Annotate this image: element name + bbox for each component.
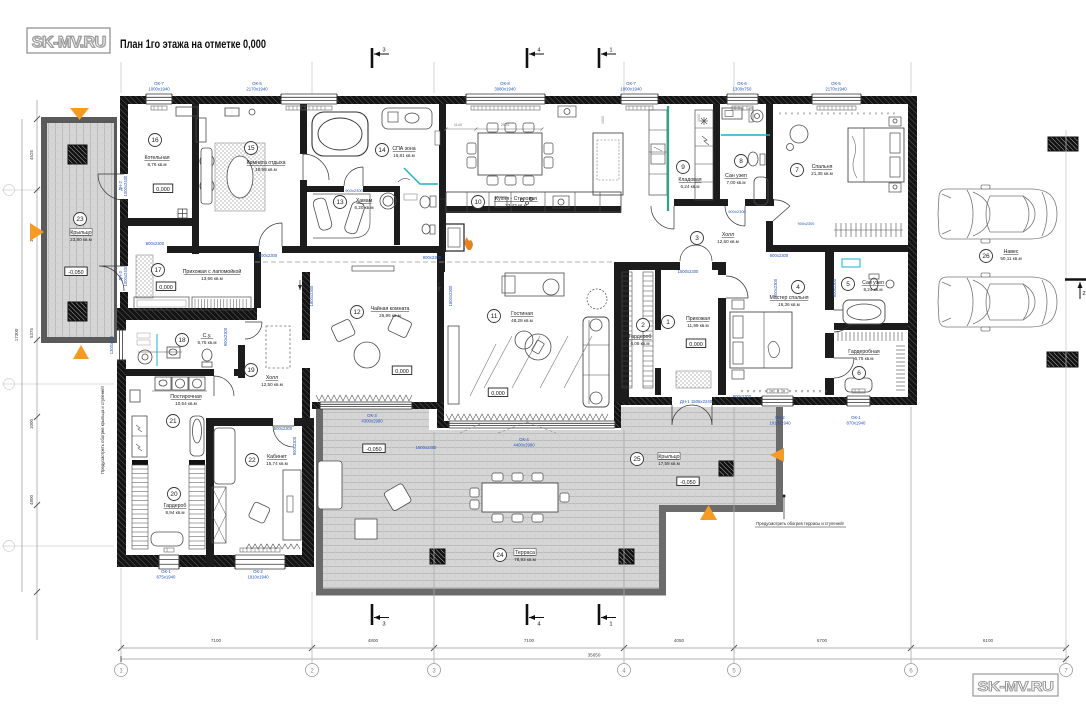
svg-text:ОК-5: ОК-5 [831, 81, 841, 86]
svg-text:13,66 кв.м: 13,66 кв.м [201, 276, 223, 281]
svg-text:0,000: 0,000 [491, 391, 505, 397]
svg-text:×: × [759, 389, 762, 395]
svg-text:800х2300: 800х2300 [773, 278, 778, 297]
svg-text:15: 15 [247, 145, 255, 152]
svg-text:СПА зона: СПА зона [392, 146, 415, 152]
svg-text:15,74 кв.м: 15,74 кв.м [266, 461, 288, 466]
svg-text:Сан узел: Сан узел [862, 280, 884, 286]
svg-text:900х2300: 900х2300 [733, 394, 752, 399]
svg-text:×: × [807, 389, 810, 395]
svg-text:ОК-5: ОК-5 [252, 81, 262, 86]
svg-text:×: × [833, 111, 836, 116]
svg-text:×: × [815, 111, 818, 116]
svg-text:Хамам: Хамам [356, 198, 373, 204]
svg-text:ОК-2: ОК-2 [775, 415, 785, 420]
svg-text:×: × [791, 111, 794, 116]
svg-text:×: × [825, 389, 828, 395]
svg-text:2: 2 [641, 322, 645, 329]
svg-text:ОК-3: ОК-3 [367, 413, 377, 418]
svg-text:Кладовая: Кладовая [678, 177, 701, 183]
svg-text:1: 1 [609, 48, 612, 54]
svg-text:4300х2990: 4300х2990 [361, 419, 383, 424]
svg-text:×: × [839, 111, 842, 116]
svg-text:6,75 кв.м: 6,75 кв.м [197, 340, 216, 345]
svg-text:×: × [797, 111, 800, 116]
svg-text:6,75 кв.м: 6,75 кв.м [854, 356, 873, 361]
svg-text:7100: 7100 [524, 638, 535, 643]
svg-text:Чайная комната: Чайная комната [371, 305, 410, 312]
svg-text:900х2300: 900х2300 [798, 222, 815, 226]
svg-text:1000: 1000 [29, 418, 34, 429]
svg-text:0,000: 0,000 [395, 369, 409, 375]
svg-text:11: 11 [491, 313, 498, 320]
svg-text:2: 2 [1082, 291, 1085, 297]
svg-text:1800х2300: 1800х2300 [309, 285, 314, 306]
svg-text:×: × [803, 111, 806, 116]
svg-text:Крыльцо: Крыльцо [70, 230, 91, 236]
svg-text:1800х2300: 1800х2300 [448, 285, 453, 306]
svg-text:12,60 кв.м: 12,60 кв.м [717, 239, 739, 244]
svg-text:×: × [809, 111, 812, 116]
svg-text:×: × [857, 111, 860, 116]
svg-text:22: 22 [248, 457, 256, 464]
svg-text:×: × [801, 389, 804, 395]
svg-text:-0,050: -0,050 [68, 270, 83, 276]
svg-text:17300: 17300 [14, 328, 19, 341]
svg-text:25: 25 [633, 456, 641, 463]
svg-text:Холл: Холл [722, 232, 734, 238]
svg-text:50,11 кв.м: 50,11 кв.м [1000, 256, 1021, 261]
svg-text:25,95 кв.м: 25,95 кв.м [379, 313, 401, 318]
svg-text:3: 3 [382, 48, 385, 54]
svg-text:SK-MV.RU: SK-MV.RU [978, 678, 1054, 694]
svg-text:7100: 7100 [211, 638, 222, 643]
svg-text:-0,050: -0,050 [366, 447, 381, 453]
svg-text:1000х1940: 1000х1940 [620, 87, 642, 92]
svg-text:6100: 6100 [983, 638, 994, 643]
svg-text:Навес: Навес [1004, 249, 1019, 255]
svg-text:1: 1 [609, 622, 612, 628]
svg-text:9: 9 [681, 164, 685, 171]
svg-text:18: 18 [178, 337, 186, 344]
svg-text:13: 13 [336, 199, 344, 206]
svg-text:4050: 4050 [674, 638, 685, 643]
svg-text:900х2300: 900х2300 [274, 426, 293, 431]
svg-text:Терраса: Терраса [515, 550, 535, 556]
svg-text:×: × [771, 389, 774, 395]
svg-text:Гардероб: Гардероб [629, 334, 652, 340]
svg-text:Гардеробная: Гардеробная [848, 349, 880, 355]
svg-text:23,80 кв.м: 23,80 кв.м [70, 237, 92, 242]
svg-text:11,99 кв.м: 11,99 кв.м [687, 323, 708, 328]
svg-text:1000х2400: 1000х2400 [123, 265, 128, 286]
svg-text:×: × [821, 111, 824, 116]
svg-text:1500х2300: 1500х2300 [416, 445, 437, 450]
svg-text:-0,050: -0,050 [680, 480, 695, 486]
svg-text:4800: 4800 [368, 638, 379, 643]
svg-text:8,76 кв.м: 8,76 кв.м [147, 162, 166, 167]
svg-text:78,93 кв.м: 78,93 кв.м [514, 557, 536, 562]
svg-text:23: 23 [76, 216, 84, 223]
svg-text:Сан узел: Сан узел [725, 173, 747, 179]
svg-text:×: × [851, 111, 854, 116]
svg-text:5: 5 [846, 281, 850, 288]
svg-text:19: 19 [247, 367, 255, 374]
svg-text:ОК-1: ОК-1 [161, 569, 171, 574]
svg-text:×: × [863, 111, 866, 116]
svg-text:6: 6 [857, 370, 861, 377]
svg-text:Крыльцо: Крыльцо [658, 454, 679, 460]
svg-text:8,24 кв.м: 8,24 кв.м [863, 287, 882, 292]
svg-text:14: 14 [378, 147, 386, 154]
svg-text:ОК-7: ОК-7 [154, 81, 164, 86]
svg-text:17: 17 [154, 267, 162, 274]
svg-text:1000: 1000 [601, 116, 605, 124]
svg-text:3: 3 [382, 622, 385, 628]
svg-text:1: 1 [666, 319, 670, 326]
svg-text:1910х1940: 1910х1940 [247, 575, 269, 580]
svg-text:1140: 1140 [454, 123, 462, 127]
svg-text:800х2300: 800х2300 [146, 241, 165, 246]
svg-text:3080х1940: 3080х1940 [494, 87, 516, 92]
svg-text:×: × [827, 111, 830, 116]
svg-text:ОК-4: ОК-4 [519, 437, 529, 442]
svg-text:5375: 5375 [29, 327, 34, 338]
svg-text:6,08 кв.м: 6,08 кв.м [630, 341, 649, 346]
svg-text:Кабинет: Кабинет [267, 454, 287, 460]
svg-text:21,35 кв.м: 21,35 кв.м [811, 171, 833, 176]
svg-text:8,94 кв.м: 8,94 кв.м [165, 510, 184, 515]
svg-text:1000х1940: 1000х1940 [148, 87, 170, 92]
svg-text:2500: 2500 [501, 123, 509, 127]
svg-text:7: 7 [795, 167, 799, 174]
svg-text:3: 3 [695, 235, 699, 242]
svg-text:16,81 кв.м: 16,81 кв.м [393, 153, 415, 158]
svg-text:Кухня - Столовая: Кухня - Столовая [495, 196, 537, 202]
svg-text:1000: 1000 [697, 114, 701, 122]
svg-text:4400х2990: 4400х2990 [513, 443, 535, 448]
svg-text:0,000: 0,000 [159, 285, 173, 291]
svg-text:1300х750: 1300х750 [109, 335, 114, 354]
svg-text:2170х1940: 2170х1940 [825, 87, 847, 92]
svg-text:×: × [875, 111, 878, 116]
svg-text:33,43 кв.м: 33,43 кв.м [505, 203, 527, 208]
svg-text:×: × [785, 111, 788, 116]
svg-text:12: 12 [353, 309, 361, 316]
svg-text:Гардероб: Гардероб [164, 503, 187, 509]
svg-text:Котельная: Котельная [144, 155, 169, 161]
svg-text:ДН-1 1506х2240: ДН-1 1506х2240 [680, 399, 713, 404]
svg-text:800х2300: 800х2300 [770, 253, 789, 258]
svg-text:×: × [813, 389, 816, 395]
svg-text:8: 8 [739, 158, 743, 165]
svg-text:35650: 35650 [588, 653, 601, 658]
svg-text:ОК-7: ОК-7 [626, 81, 636, 86]
svg-text:Спальня: Спальня [812, 164, 833, 170]
svg-text:870х1940: 870х1940 [847, 421, 866, 426]
svg-text:900х2300: 900х2300 [223, 327, 228, 346]
svg-text:×: × [887, 111, 890, 116]
svg-text:16,36 кв.м: 16,36 кв.м [778, 302, 800, 307]
svg-text:×: × [783, 389, 786, 395]
svg-text:900х2300: 900х2300 [728, 209, 746, 214]
svg-text:Предусмотреть обогрев террасы: Предусмотреть обогрев террасы и ступеней… [756, 521, 843, 526]
svg-text:4800: 4800 [29, 494, 34, 505]
svg-text:ОК-1: ОК-1 [851, 415, 861, 420]
svg-text:24: 24 [496, 552, 504, 559]
svg-text:48,28 кв.м: 48,28 кв.м [511, 318, 533, 323]
svg-text:Гостиная: Гостиная [511, 311, 533, 317]
svg-text:Предусмотреть обогрев крыльца: Предусмотреть обогрев крыльца и ступеней… [100, 386, 105, 474]
svg-text:×: × [789, 389, 792, 395]
svg-text:×: × [869, 111, 872, 116]
svg-text:7,00 кв.м: 7,00 кв.м [726, 180, 745, 185]
svg-text:16: 16 [151, 137, 159, 144]
svg-text:×: × [819, 389, 822, 395]
svg-text:2170х1940: 2170х1940 [246, 87, 268, 92]
svg-text:900х2300: 900х2300 [259, 253, 278, 258]
svg-text:ОК-6: ОК-6 [737, 81, 747, 86]
svg-text:875х1940: 875х1940 [157, 575, 176, 580]
svg-text:6,24 кв.м: 6,24 кв.м [680, 184, 699, 189]
svg-text:ОК-2: ОК-2 [253, 569, 263, 574]
svg-text:Постирочная: Постирочная [170, 394, 202, 400]
svg-text:Прихожая: Прихожая [686, 316, 710, 322]
svg-text:4525: 4525 [29, 149, 34, 160]
svg-text:1300х750: 1300х750 [733, 87, 752, 92]
svg-text:0,000: 0,000 [156, 187, 170, 193]
svg-text:Комната отдыха: Комната отдыха [247, 160, 286, 166]
svg-text:×: × [753, 389, 756, 395]
svg-text:6700: 6700 [817, 638, 828, 643]
svg-text:×: × [881, 111, 884, 116]
svg-text:900х2300: 900х2300 [292, 436, 297, 455]
svg-text:900х2300: 900х2300 [345, 188, 363, 193]
svg-text:С.у.: С.у. [203, 333, 212, 339]
svg-text:ОК-8: ОК-8 [500, 81, 510, 86]
svg-text:26: 26 [982, 253, 990, 260]
svg-text:20: 20 [170, 491, 178, 498]
svg-text:План 1го этажа на отметке 0,00: План 1го этажа на отметке 0,000 [120, 37, 266, 51]
svg-text:Холл: Холл [266, 375, 278, 381]
svg-text:SK-MV.RU: SK-MV.RU [32, 34, 106, 51]
svg-text:12,50 кв.м: 12,50 кв.м [261, 382, 283, 387]
svg-text:×: × [795, 389, 798, 395]
svg-text:4: 4 [796, 284, 800, 291]
svg-text:×: × [893, 111, 896, 116]
svg-text:17,58 кв.м: 17,58 кв.м [658, 461, 680, 466]
svg-text:1000х2400: 1000х2400 [123, 175, 128, 196]
svg-text:Прихожая с лапомойкой: Прихожая с лапомойкой [183, 268, 242, 275]
svg-text:×: × [779, 111, 782, 116]
svg-text:10,64 кв.м: 10,64 кв.м [175, 401, 197, 406]
svg-text:900х2300: 900х2300 [423, 255, 442, 260]
svg-text:1910х1940: 1910х1940 [769, 421, 791, 426]
svg-text:10: 10 [474, 199, 482, 206]
svg-text:800х2300: 800х2300 [832, 278, 837, 297]
svg-text:×: × [845, 111, 848, 116]
svg-text:1500х2300: 1500х2300 [678, 269, 699, 274]
svg-text:18,98 кв.м: 18,98 кв.м [255, 167, 277, 172]
svg-text:6,20 кв.м: 6,20 кв.м [354, 205, 373, 210]
svg-text:0,000: 0,000 [689, 342, 703, 348]
svg-text:21: 21 [169, 418, 177, 425]
